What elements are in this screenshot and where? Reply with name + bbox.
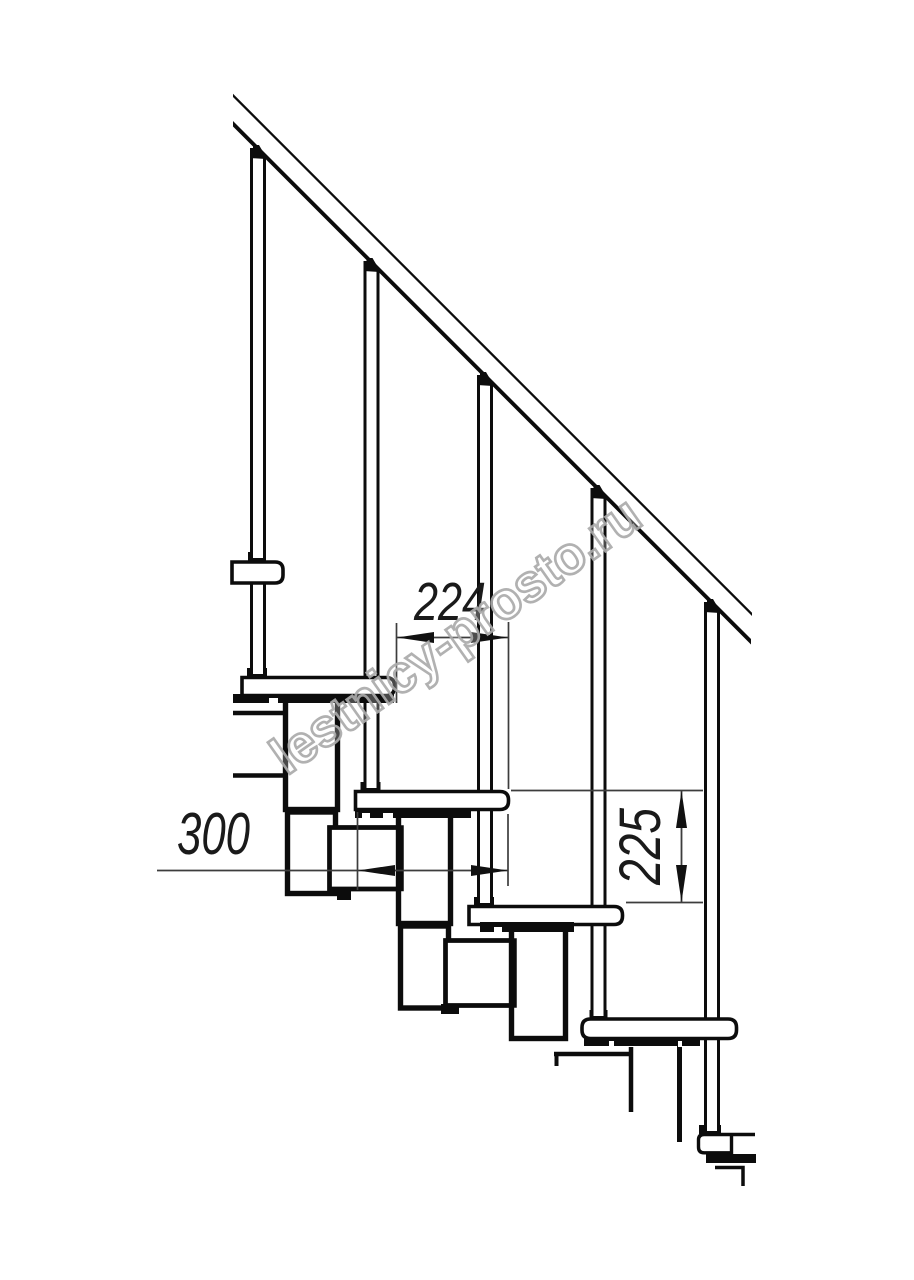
svg-text:225: 225 [608,807,673,885]
svg-text:300: 300 [177,801,250,867]
